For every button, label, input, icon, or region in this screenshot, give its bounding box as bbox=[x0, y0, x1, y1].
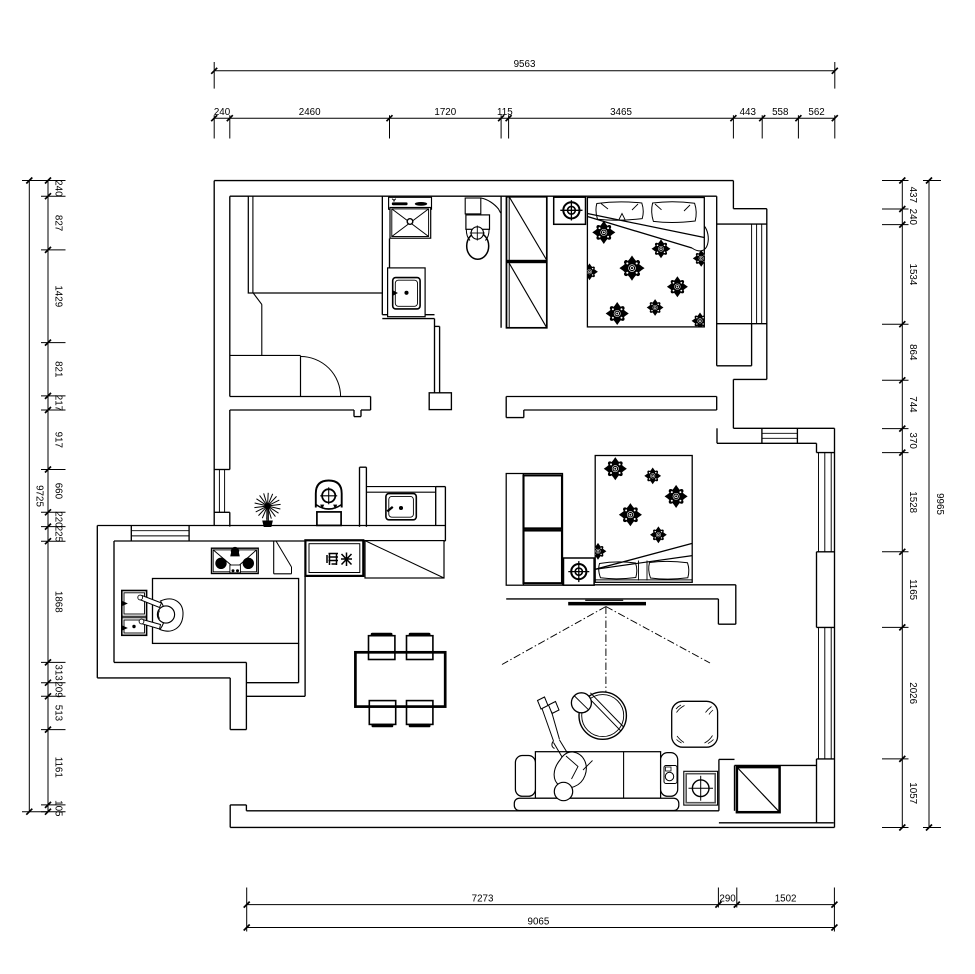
svg-text:115: 115 bbox=[497, 107, 513, 118]
svg-text:370: 370 bbox=[907, 432, 918, 449]
svg-text:660: 660 bbox=[53, 483, 64, 500]
svg-text:240: 240 bbox=[214, 107, 231, 118]
svg-text:225: 225 bbox=[53, 526, 64, 543]
svg-text:513: 513 bbox=[53, 705, 64, 722]
svg-text:917: 917 bbox=[53, 432, 64, 448]
svg-text:827: 827 bbox=[53, 215, 64, 231]
svg-text:864: 864 bbox=[907, 344, 918, 361]
svg-text:9965: 9965 bbox=[934, 493, 945, 515]
svg-text:1057: 1057 bbox=[907, 782, 918, 804]
svg-text:744: 744 bbox=[907, 396, 918, 413]
svg-text:1720: 1720 bbox=[434, 107, 456, 118]
svg-text:9065: 9065 bbox=[528, 917, 550, 928]
svg-text:240: 240 bbox=[53, 180, 64, 197]
svg-text:240: 240 bbox=[907, 209, 918, 226]
svg-text:313: 313 bbox=[53, 664, 64, 681]
svg-text:290: 290 bbox=[719, 893, 736, 904]
svg-text:558: 558 bbox=[772, 107, 789, 118]
svg-text:821: 821 bbox=[53, 361, 64, 377]
svg-text:1429: 1429 bbox=[53, 285, 64, 307]
svg-text:3465: 3465 bbox=[610, 107, 632, 118]
svg-text:1868: 1868 bbox=[53, 591, 64, 613]
svg-text:1161: 1161 bbox=[53, 757, 64, 778]
svg-text:9563: 9563 bbox=[514, 59, 536, 70]
svg-text:443: 443 bbox=[740, 107, 757, 118]
svg-text:217: 217 bbox=[53, 395, 64, 411]
svg-text:1528: 1528 bbox=[907, 491, 918, 513]
svg-text:7273: 7273 bbox=[472, 893, 494, 904]
svg-text:105: 105 bbox=[53, 800, 64, 817]
svg-text:1165: 1165 bbox=[907, 579, 918, 601]
svg-text:2026: 2026 bbox=[907, 682, 918, 704]
svg-text:9725: 9725 bbox=[34, 485, 45, 507]
svg-text:1502: 1502 bbox=[775, 893, 797, 904]
svg-text:2460: 2460 bbox=[299, 107, 321, 118]
svg-text:1534: 1534 bbox=[907, 264, 918, 286]
svg-text:437: 437 bbox=[907, 187, 918, 203]
svg-text:562: 562 bbox=[808, 107, 824, 118]
svg-text:209: 209 bbox=[53, 681, 64, 697]
